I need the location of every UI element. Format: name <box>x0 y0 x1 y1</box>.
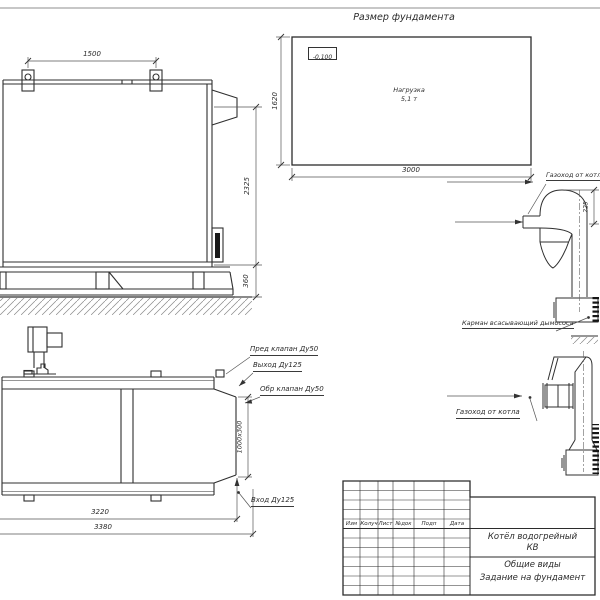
tb-col-data: Дата <box>444 520 470 528</box>
label-check-valve: Обр клапан Ду50 <box>260 386 324 396</box>
boiler-side-view <box>0 70 237 295</box>
side-view-dimensions <box>28 57 262 297</box>
dim-rear-opening: 1000х300 <box>236 421 243 454</box>
flue-detail-front <box>543 351 599 475</box>
tb-product-code: КВ <box>470 544 595 553</box>
dim-foundation-depth: 1620 <box>272 92 280 110</box>
foundation-load-value: 5,1 т <box>401 96 417 103</box>
boiler-plan-view <box>2 327 236 501</box>
tb-col-list: Лист <box>378 520 393 528</box>
label-flue-duct-front: Газоход от котла <box>456 409 520 419</box>
label-outlet: Выход Ду125 <box>253 362 302 372</box>
flue-side-leaders <box>447 182 599 331</box>
tb-col-izm: Изм <box>343 520 360 528</box>
ground-hatch <box>0 297 252 315</box>
dim-foundation-width: 3000 <box>402 167 420 175</box>
tb-doc-task: Задание на фундамент <box>470 574 595 583</box>
leader-arrows <box>235 180 590 494</box>
label-suction-pocket: Карман всасывающий дымососа <box>462 320 574 329</box>
tb-col-koluch: Колуч <box>360 520 378 528</box>
dim-boiler-height: 2325 <box>244 177 252 195</box>
dim-base-height: 360 <box>243 274 251 287</box>
label-flue-duct-side: Газоход от котла <box>546 172 600 181</box>
label-safety-valve: Пред клапан Ду50 <box>250 346 318 356</box>
tb-product-name: Котёл водогрейный <box>470 533 595 542</box>
dim-flue-offset: 225 <box>584 201 591 212</box>
dim-length-inner: 3220 <box>91 509 109 517</box>
tb-doc-type: Общие виды <box>470 561 595 570</box>
elevation-mark-box: -0,100 <box>308 47 337 60</box>
elevation-mark: -0,100 <box>313 54 332 61</box>
label-inlet: Вход Ду125 <box>251 497 294 507</box>
dim-length-outer: 3380 <box>94 524 112 532</box>
tb-col-ndok: №док <box>393 520 414 528</box>
drawing-linework <box>0 0 600 600</box>
plan-view-dimensions <box>0 357 260 537</box>
foundation-plan-title: Размер фундамента <box>353 13 455 23</box>
dimension-ticks <box>25 34 597 537</box>
drawing-sheet: Размер фундамента -0,100 Нагрузка 5,1 т … <box>0 0 600 600</box>
dim-lug-spacing: 1500 <box>83 51 101 59</box>
tb-col-podp: Подп <box>414 520 444 528</box>
foundation-load-label: Нагрузка <box>393 87 425 94</box>
